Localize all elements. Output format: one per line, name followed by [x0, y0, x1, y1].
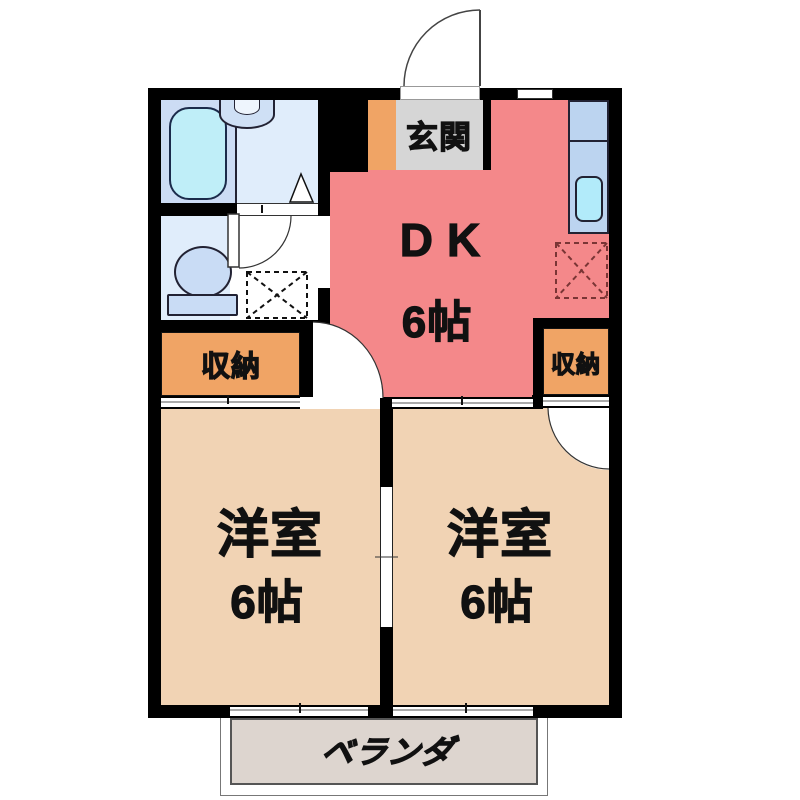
room-partition-sliding-door: [380, 487, 393, 627]
closet-right-threshold: [543, 395, 609, 408]
window-bottom-left: [230, 705, 368, 718]
wall-room-divider-top: [380, 397, 393, 487]
dk-floor-upper: [491, 100, 568, 170]
wall-hall-dk-upper: [318, 172, 330, 216]
western-room-left-size: 6帖: [230, 566, 304, 632]
wall-room-divider-bottom: [380, 627, 393, 718]
wall-closet-right-side: [533, 318, 543, 397]
washing-machine-space: [247, 272, 307, 318]
bathtub: [169, 107, 227, 200]
closet-right-label: 収納: [551, 345, 601, 380]
western-room-right-label: 洋室: [447, 493, 553, 568]
toilet-bowl: [174, 246, 232, 298]
dk-label: DK: [400, 213, 494, 267]
wall-left: [148, 88, 161, 718]
wall-mat-stub: [483, 100, 491, 170]
floor-plan: 玄関 DK 6帖 収納 収納 洋室 6帖 洋室 6帖 ベランダ: [0, 0, 800, 800]
balcony-label: ベランダ: [319, 727, 457, 773]
washroom-door-arc: [239, 216, 291, 268]
washbasin-bowl: [234, 100, 260, 115]
dk-room-right-sliding-door: [392, 397, 533, 409]
kitchen-counter-divider: [568, 140, 609, 142]
western-room-left-label: 洋室: [217, 493, 323, 568]
wall-right: [609, 88, 622, 718]
wall-closet-left-side: [300, 332, 313, 397]
kitchen-sink: [575, 176, 603, 222]
wall-closet-right-top: [533, 318, 609, 328]
washroom-threshold: [237, 203, 318, 216]
window-bottom-right: [393, 705, 533, 718]
wall-post-closet-right: [532, 395, 543, 409]
closet-left-sliding-door: [161, 396, 300, 409]
entrance-threshold: [400, 86, 480, 100]
toilet-tank: [167, 294, 238, 316]
wall-bath-toilet: [148, 203, 237, 216]
wall-hall-closet: [148, 320, 330, 332]
entrance-side-floor: [368, 100, 396, 170]
wall-entry-block: [318, 98, 368, 172]
window-top: [517, 89, 553, 99]
dk-left-room-door-gap: [313, 396, 380, 409]
closet-left-label: 収納: [201, 343, 261, 385]
dk-size-label: 6帖: [402, 286, 472, 350]
entrance-door-arc: [404, 10, 480, 86]
western-room-right-size: 6帖: [460, 566, 534, 632]
entrance-label: 玄関: [406, 112, 472, 158]
